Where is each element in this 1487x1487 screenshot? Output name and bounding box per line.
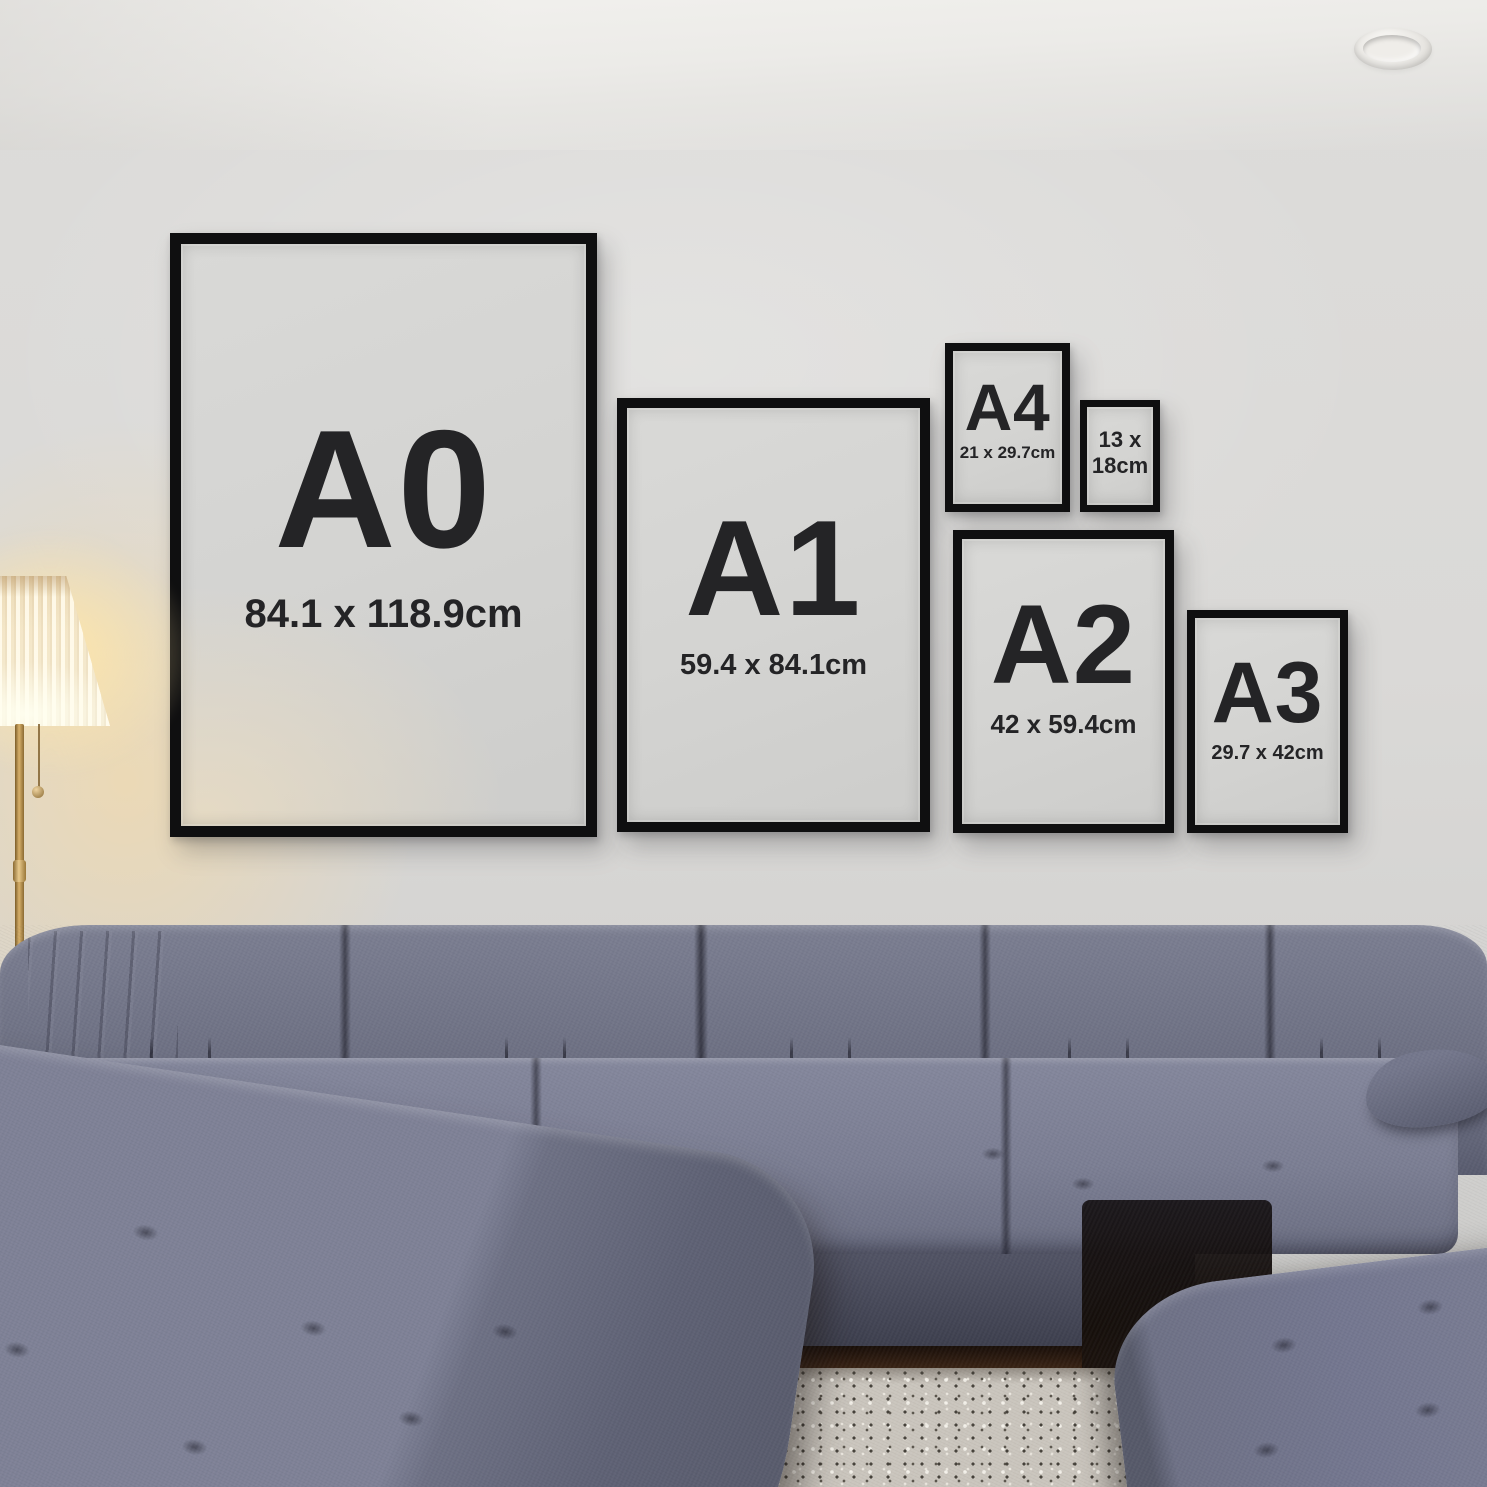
size-text-a0: A0 84.1 x 118.9cm: [244, 410, 522, 636]
poster-a4: A4 21 x 29.7cm: [953, 351, 1062, 504]
recessed-light-inner-ring: [1363, 35, 1421, 62]
size-dimensions-a1: 59.4 x 84.1cm: [680, 650, 867, 682]
size-label-a0: A0: [274, 410, 492, 570]
frame-a2: A2 42 x 59.4cm: [953, 530, 1174, 833]
size-label-a4: A4: [965, 376, 1051, 439]
frame-a0: A0 84.1 x 118.9cm: [170, 233, 597, 837]
size-text-a4: A4 21 x 29.7cm: [960, 376, 1055, 462]
lamp-pole: [15, 724, 24, 960]
size-label-13x18-line2: 18cm: [1092, 453, 1148, 479]
size-text-a1: A1 59.4 x 84.1cm: [680, 504, 867, 681]
ceiling: [0, 0, 1487, 150]
poster-a3: A3 29.7 x 42cm: [1195, 618, 1340, 825]
frame-13x18: 13 x 18cm: [1080, 400, 1160, 512]
lamp-pull-chain: [38, 724, 40, 788]
size-dimensions-a4: 21 x 29.7cm: [960, 444, 1055, 463]
poster-a0: A0 84.1 x 118.9cm: [181, 244, 586, 826]
size-dimensions-a3: 29.7 x 42cm: [1211, 742, 1323, 764]
poster-a2: A2 42 x 59.4cm: [962, 539, 1165, 824]
frame-a1: A1 59.4 x 84.1cm: [617, 398, 930, 832]
poster-13x18: 13 x 18cm: [1087, 407, 1153, 505]
size-label-13x18-line1: 13 x: [1099, 427, 1142, 453]
recessed-ceiling-light: [1354, 28, 1432, 70]
size-text-13x18: 13 x 18cm: [1092, 427, 1148, 480]
living-room-scene: A0 84.1 x 118.9cm A1 59.4 x 84.1cm A4 21…: [0, 0, 1487, 1487]
size-text-a2: A2 42 x 59.4cm: [990, 592, 1136, 739]
size-label-a1: A1: [685, 504, 862, 633]
lamp-pull-chain-ball: [32, 786, 44, 798]
frame-a3: A3 29.7 x 42cm: [1187, 610, 1348, 833]
poster-a1: A1 59.4 x 84.1cm: [627, 408, 920, 822]
frame-a4: A4 21 x 29.7cm: [945, 343, 1070, 512]
size-dimensions-a0: 84.1 x 118.9cm: [244, 592, 522, 636]
size-text-a3: A3 29.7 x 42cm: [1211, 653, 1323, 765]
lamp-pole-joint: [13, 860, 26, 882]
size-label-a3: A3: [1212, 653, 1324, 735]
size-dimensions-a2: 42 x 59.4cm: [990, 710, 1136, 739]
size-label-a2: A2: [991, 592, 1136, 698]
